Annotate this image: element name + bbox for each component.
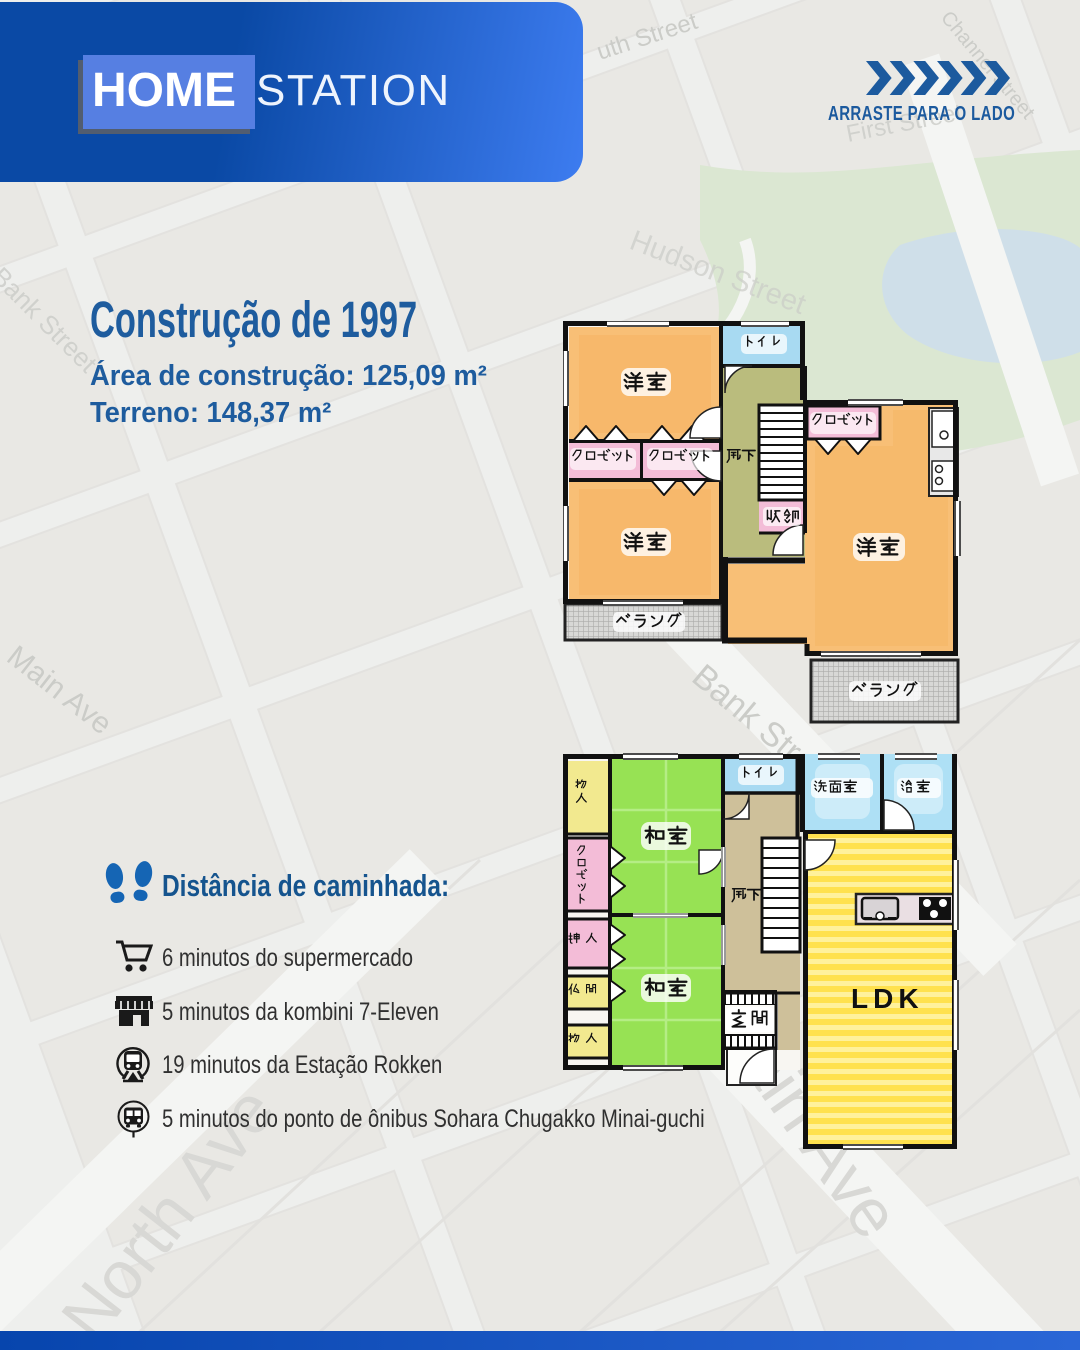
svg-text:LDK: LDK (851, 983, 924, 1014)
